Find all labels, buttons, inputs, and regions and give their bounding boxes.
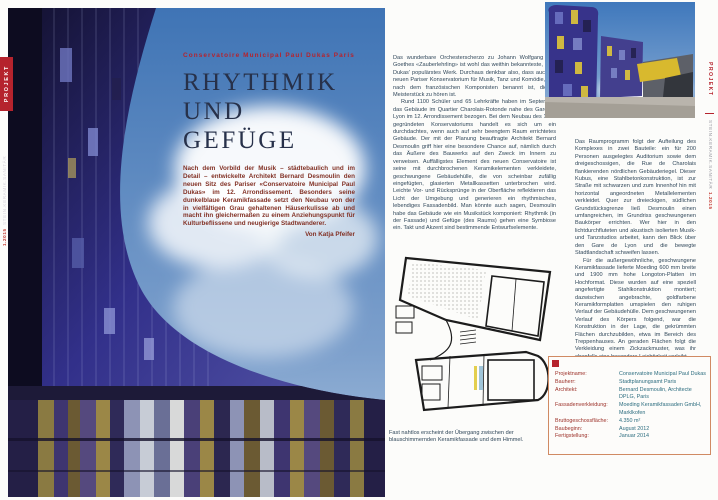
spine-issue-left: 1.2015: [2, 228, 7, 246]
floor-plan: [388, 248, 562, 418]
info-label: Baubeginn:: [555, 426, 619, 434]
body-column-2: Das Raumprogramm folgt der Aufteilung de…: [575, 139, 696, 357]
info-row: Baubeginn: August 2012: [555, 426, 706, 434]
info-row: Bauherr: Stadtplanungsamt Paris: [555, 379, 706, 387]
title-line-1: RHYTHMIK: [183, 68, 355, 97]
byline: Von Katja Pfeifer: [183, 231, 355, 238]
info-label: Bruttogeschossfläche:: [555, 418, 619, 426]
section-tab-right: PROJEKT: [707, 62, 713, 96]
courtyard-photo-illustration: [545, 2, 695, 118]
title-line-2: UND GEFÜGE: [183, 97, 355, 155]
info-value: 4.350 m²: [619, 418, 706, 426]
info-value: August 2012: [619, 426, 706, 434]
spine-text-left: 1.2015 STEIN.KERAMIK.SANITÄR: [2, 116, 7, 246]
info-label: Bauherr:: [555, 379, 619, 387]
floor-plan-illustration: [388, 248, 562, 418]
info-label: Projektname:: [555, 371, 619, 379]
red-square-bullet: [552, 360, 559, 367]
info-value: Stadtplanungsamt Paris: [619, 379, 706, 387]
info-label: Fassadenverkleidung:: [555, 402, 619, 418]
info-row: Projektname: Conservatoire Municipal Pau…: [555, 371, 706, 379]
project-info-rows: Projektname: Conservatoire Municipal Pau…: [549, 357, 710, 441]
info-value: Moeding Keramikfassaden GmbH, Marklkofen: [619, 402, 706, 418]
spine-name-right: STEIN.KERAMIK.SANITÄR: [708, 120, 713, 189]
spine-name-left: STEIN.KERAMIK.SANITÄR: [2, 156, 7, 225]
intro-paragraph: Nach dem Vorbild der Musik – städtebauli…: [183, 165, 355, 228]
magazine-spread: PROJEKT 1.2015 STEIN.KERAMIK.SANITÄR Con…: [0, 0, 718, 500]
body-paragraph: Das wunderbare Orchesterscherzo zu Johan…: [393, 55, 556, 99]
info-row: Architekt: Bernard Desmoulin, Architecte…: [555, 387, 706, 403]
body-paragraph: Für die außergewöhnliche, geschwungene K…: [575, 258, 696, 358]
info-value: Conservatoire Municipal Paul Dukas: [619, 371, 706, 379]
spine-text-right: STEIN.KERAMIK.SANITÄR 1.2015: [708, 120, 713, 210]
photo-caption: Fast nahtlos erscheint der Übergang zwis…: [389, 430, 551, 444]
section-tab-left-label: PROJEKT: [4, 65, 10, 102]
info-label: Architekt:: [555, 387, 619, 403]
body-paragraph: Rund 1100 Schüler und 65 Lehrkräfte habe…: [393, 99, 556, 232]
title-block: Conservatoire Municipal Paul Dukas Paris…: [183, 52, 355, 238]
info-row: Fertigstellung: Januar 2014: [555, 433, 706, 441]
body-column-1: Das wunderbare Orchesterscherzo zu Johan…: [393, 55, 556, 242]
section-tab-left: PROJEKT: [0, 57, 13, 111]
page-title: RHYTHMIK UND GEFÜGE: [183, 68, 355, 155]
info-label: Fertigstellung:: [555, 433, 619, 441]
courtyard-photo: [545, 2, 695, 118]
info-value: Bernard Desmoulin, Architecte DPLG, Pari…: [619, 387, 706, 403]
info-value: Januar 2014: [619, 433, 706, 441]
project-info-box: Projektname: Conservatoire Municipal Pau…: [548, 356, 711, 455]
info-row: Fassadenverkleidung: Moeding Keramikfass…: [555, 402, 706, 418]
body-paragraph: Das Raumprogramm folgt der Aufteilung de…: [575, 139, 696, 258]
info-row: Bruttogeschossfläche: 4.350 m²: [555, 418, 706, 426]
edge-rule: [705, 113, 714, 114]
kicker: Conservatoire Municipal Paul Dukas Paris: [183, 52, 355, 59]
spine-issue-right: 1.2015: [708, 192, 713, 210]
